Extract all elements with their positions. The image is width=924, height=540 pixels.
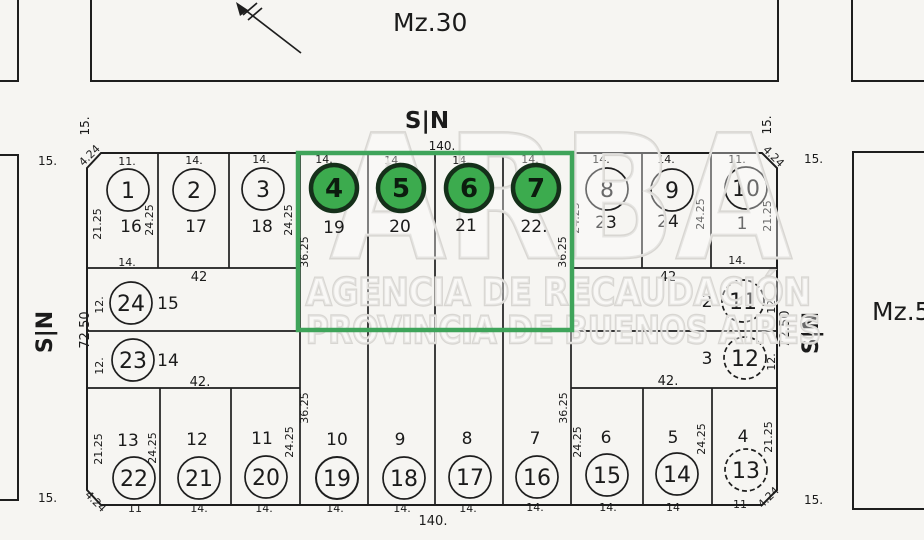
dim-24-br-b: 24.25: [695, 423, 708, 455]
dim-side-br: 21.25: [762, 421, 775, 453]
dim-chamfer-bl: 4.24: [82, 488, 109, 515]
watermark-line1: AGENCIA DE RECAUDACIÓN: [306, 270, 811, 314]
arba-watermark: ARBA AGENCIA DE RECAUDACIÓN PROVINCIA DE…: [306, 98, 821, 352]
dim-24-tl-a: 24.25: [143, 204, 156, 236]
frontage-bottom: 140.: [419, 514, 448, 529]
lot-number: 16: [523, 466, 551, 491]
street-left-name: S|N: [33, 311, 58, 353]
frontage-label: 14.: [459, 502, 477, 515]
street-w-left-bottom: 15.: [38, 491, 57, 505]
plan-drawing: Mz.30 Mz.5 S|N 140. 140. S|N S|N 72.50 7…: [0, 0, 924, 540]
dim-24-br-a: 24.25: [571, 426, 584, 458]
dim-36-bl: 36.25: [298, 392, 311, 424]
block-right-label: Mz.5: [872, 297, 924, 326]
parcel-number: 14: [157, 351, 179, 371]
parcel-number: 3: [702, 349, 713, 369]
dim-42-br: 42.: [658, 374, 679, 389]
parcel-number: 17: [185, 217, 207, 237]
parcel-number: 15: [157, 294, 179, 314]
dim-strip-l1: 12.: [93, 296, 106, 314]
dim-42-tl: 42: [191, 270, 208, 285]
lot-number: 19: [323, 467, 351, 492]
parcel-number: 20: [389, 217, 411, 237]
highlighted-lot-number: 5: [392, 174, 410, 204]
block-top-left-corner: [0, 0, 18, 81]
frontage-label: 14.: [255, 502, 273, 515]
north-arrow-head: [236, 2, 248, 16]
lot-number: 21: [185, 467, 213, 492]
lot-number: 3: [256, 178, 270, 203]
cadastral-plan-scan: Mz.30 Mz.5 S|N 140. 140. S|N S|N 72.50 7…: [0, 0, 924, 540]
parcel-number: 18: [251, 217, 273, 237]
frontage-label: 11: [128, 502, 142, 515]
dim-24-bl-b: 24.25: [283, 426, 296, 458]
frontage-label: 14.: [190, 502, 208, 515]
dim-36-br: 36.25: [557, 392, 570, 424]
lot-number: 23: [119, 349, 147, 374]
lot-number: 2: [187, 179, 201, 204]
lot-number: 22: [120, 467, 148, 492]
lot-number: 18: [390, 467, 418, 492]
lots-bottom-center: 10 19 14. 9 18 14. 8 17 14. 7 16 14.: [316, 429, 558, 515]
parcel-number: 5: [668, 428, 679, 448]
street-w-right-top: 15.: [804, 152, 823, 166]
dim-side-tl: 21.25: [91, 208, 104, 240]
parcel-number: 4: [738, 427, 749, 447]
parcel-number: 9: [395, 430, 406, 450]
lot-number: 1: [121, 179, 135, 204]
parcel-number: 11: [251, 429, 273, 449]
front-lot3: 14.: [252, 153, 270, 166]
dim-24-bl-a: 24.25: [146, 432, 159, 464]
parcel-number: 12: [186, 430, 208, 450]
north-arrow-icon: [236, 2, 301, 53]
parcel-number: 8: [462, 429, 473, 449]
highlighted-lot-number: 6: [460, 174, 478, 204]
parcel-number: 10: [326, 430, 348, 450]
lot-number: 14: [663, 463, 691, 488]
front-lot1: 11.: [118, 155, 136, 168]
street-w-right-bottom: 15.: [804, 493, 823, 507]
highlighted-lot-number: 4: [325, 174, 343, 204]
parcel-number: 7: [530, 429, 541, 449]
frontage-label: 14.: [326, 502, 344, 515]
frontage-label: 14.: [526, 501, 544, 514]
lots-bottom-right: 6 15 14. 5 14 14 4 13 11: [586, 427, 767, 514]
dim-side-bl: 21.25: [92, 433, 105, 465]
highlighted-lot-number: 7: [527, 174, 545, 204]
lot-number: 24: [117, 292, 145, 317]
block-left-outline: [0, 155, 18, 500]
block-top-label: Mz.30: [393, 8, 467, 37]
depth-left: 72.50: [78, 311, 93, 348]
dim-42-bl: 42.: [190, 375, 211, 390]
lots-bottom-left: 13 22 11 12 21 14. 11 20 14.: [113, 429, 287, 515]
parcel-number: 6: [601, 428, 612, 448]
block-top-right-outline: [852, 0, 924, 81]
front-lot2: 14.: [185, 154, 203, 167]
frontage-label: 11: [733, 498, 747, 511]
lot-number: 20: [252, 466, 280, 491]
rear-lot1: 14.: [118, 256, 136, 269]
dim-strip-l2: 12.: [93, 357, 106, 375]
street-w-corner-tl: 15.: [78, 116, 92, 135]
parcel-number: 21: [455, 216, 477, 236]
frontage-label: 14.: [599, 501, 617, 514]
lot-number: 15: [593, 464, 621, 489]
lots-top-left: 1 16 2 17 3 18: [107, 168, 284, 237]
dim-24-tl-b: 24.25: [282, 204, 295, 236]
dim-strip-r2: 12.: [765, 353, 778, 371]
lot-number: 17: [456, 466, 484, 491]
lot-number: 13: [732, 459, 760, 484]
block-right-outline: [853, 152, 924, 509]
north-arrow-line: [240, 6, 301, 53]
parcel-number: 22.: [520, 217, 547, 237]
street-w-left-top: 15.: [38, 154, 57, 168]
parcel-number: 16: [120, 217, 142, 237]
frontage-label: 14.: [393, 502, 411, 515]
parcel-number: 13: [117, 431, 139, 451]
parcel-number: 19: [323, 218, 345, 238]
frontage-label: 14: [666, 501, 680, 514]
